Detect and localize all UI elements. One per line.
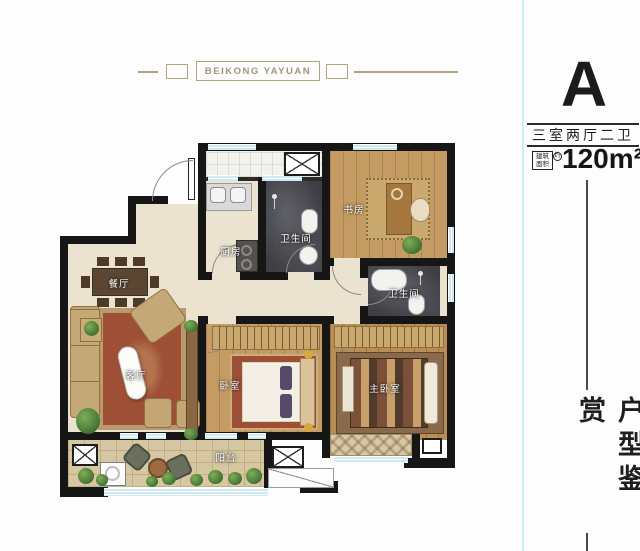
window-balcony-outer <box>104 488 268 496</box>
window-living-balcony-a <box>120 433 138 439</box>
wall-bath1-bottom <box>314 272 330 280</box>
wall-mid-c <box>362 316 455 324</box>
panel-divider <box>522 0 524 551</box>
plant-icon <box>184 320 198 332</box>
wall-kitchen-bottom-a <box>198 272 212 280</box>
dining-chair <box>97 298 109 307</box>
room-label-balcony: 阳台 <box>215 450 236 464</box>
wall-study-bottom-a <box>322 258 334 266</box>
window-study-right <box>448 227 454 253</box>
plant-icon <box>228 472 242 485</box>
banner-small-box-left <box>166 64 188 79</box>
plant-icon <box>162 472 176 485</box>
window-north-platform <box>208 144 256 150</box>
room-label-study: 书房 <box>343 202 364 216</box>
shower-hose <box>420 276 421 285</box>
pillow <box>280 394 292 418</box>
room-label-dining: 餐厅 <box>108 276 129 290</box>
wall-kitchen-bottom-b <box>240 272 288 280</box>
side-line-bottom <box>586 533 588 551</box>
plant-icon <box>146 476 158 487</box>
window-kitchen-platform <box>208 175 238 181</box>
banner-title-box: BEIKONG YAYUAN <box>196 61 320 81</box>
banner-title: BEIKONG YAYUAN <box>205 66 311 77</box>
floorplan-page: BEIKONG YAYUAN A 三室两厅二卫 建筑 面积 约 120m² 户型… <box>0 0 640 551</box>
wall-balcony-bottom-left <box>60 487 108 497</box>
wall-bedroom-master <box>322 324 330 440</box>
room-label-kitchen: 厨房 <box>220 244 241 258</box>
window-bedroom-balcony-b <box>248 433 266 439</box>
dining-chair <box>115 257 127 266</box>
burner-icon <box>241 259 252 270</box>
wall-bottom-right-corner <box>404 458 455 468</box>
dining-chair <box>97 257 109 266</box>
wall-bay-pillar-right <box>412 434 420 458</box>
floor-entry <box>136 204 198 244</box>
side-vertical-title: 户型鉴赏 <box>571 396 640 528</box>
dining-chair <box>133 257 145 266</box>
room-label-bathroom2: 卫生间 <box>388 286 420 300</box>
ac-platform-icon-right <box>272 446 304 468</box>
plant-icon <box>190 474 203 486</box>
room-label-master-bedroom: 主卧室 <box>369 381 401 395</box>
open-platform <box>268 468 334 488</box>
banner-small-box-right <box>326 64 348 79</box>
bedside-lamp-icon <box>304 350 313 359</box>
wall-kitchen-bath1 <box>258 177 266 280</box>
armchair <box>144 398 172 428</box>
wardrobe <box>212 326 320 350</box>
tv-stand <box>186 326 198 436</box>
burner-icon <box>241 245 252 256</box>
wardrobe <box>334 326 444 348</box>
ac-platform-icon-left <box>72 444 98 466</box>
desk-lamp-icon <box>391 188 403 200</box>
unit-letter: A <box>546 52 622 116</box>
wall-mid-b <box>236 316 334 324</box>
plant-icon <box>184 428 198 440</box>
plant-icon <box>208 470 223 484</box>
wall-entry-step-h <box>60 236 136 244</box>
plant-icon <box>84 321 99 336</box>
room-label-bathroom1: 卫生间 <box>280 231 312 245</box>
wall-study-bottom-b <box>360 258 455 266</box>
area-badge-line1: 建筑 <box>533 153 552 161</box>
banner-line-left <box>138 71 158 73</box>
bedside-lamp-icon <box>304 423 313 432</box>
window-living-balcony-b <box>146 433 166 439</box>
plant-icon <box>402 236 422 254</box>
wall-left <box>60 236 68 497</box>
wall-bay-pillar-left <box>322 432 330 458</box>
room-label-bedroom: 卧室 <box>219 378 240 392</box>
window-study-top <box>353 144 397 150</box>
ac-platform-icon-north <box>284 152 320 176</box>
wall-bath2-left-a <box>360 266 368 278</box>
headboard <box>424 362 438 424</box>
area-approx-circle: 约 <box>553 152 562 161</box>
plant-icon <box>76 408 100 434</box>
area-badge: 建筑 面积 <box>532 151 553 170</box>
window-bedroom-balcony-a <box>205 433 237 439</box>
area-badge-line2: 面积 <box>533 161 552 169</box>
side-line-top <box>586 180 588 390</box>
pillow <box>280 366 292 390</box>
dining-chair <box>81 276 90 288</box>
dining-chair <box>115 298 127 307</box>
sink-basin-icon <box>230 187 246 203</box>
window-bathroom2-right <box>448 274 454 302</box>
layout-text: 三室两厅二卫 <box>527 126 639 143</box>
window-master-bay <box>334 456 408 463</box>
room-label-living: 客厅 <box>125 368 146 382</box>
bay-window-seat <box>330 434 412 456</box>
banner-line-right <box>354 71 458 73</box>
dining-chair <box>150 276 159 288</box>
plant-icon <box>78 468 94 484</box>
wall-mid-a <box>198 316 208 324</box>
area-value: 120m² <box>562 143 640 175</box>
bed-bench <box>342 366 354 412</box>
plant-icon <box>246 468 262 484</box>
ac-platform-icon-bay <box>422 438 442 454</box>
entry-door-arc <box>152 160 193 201</box>
washbasin-icon <box>299 246 318 265</box>
plant-icon <box>96 474 108 486</box>
sink-basin-icon <box>210 187 226 203</box>
shower-hose <box>274 199 275 209</box>
headboard <box>300 358 315 426</box>
desk-chair <box>410 198 430 222</box>
wall-kitchen-left <box>198 143 206 280</box>
